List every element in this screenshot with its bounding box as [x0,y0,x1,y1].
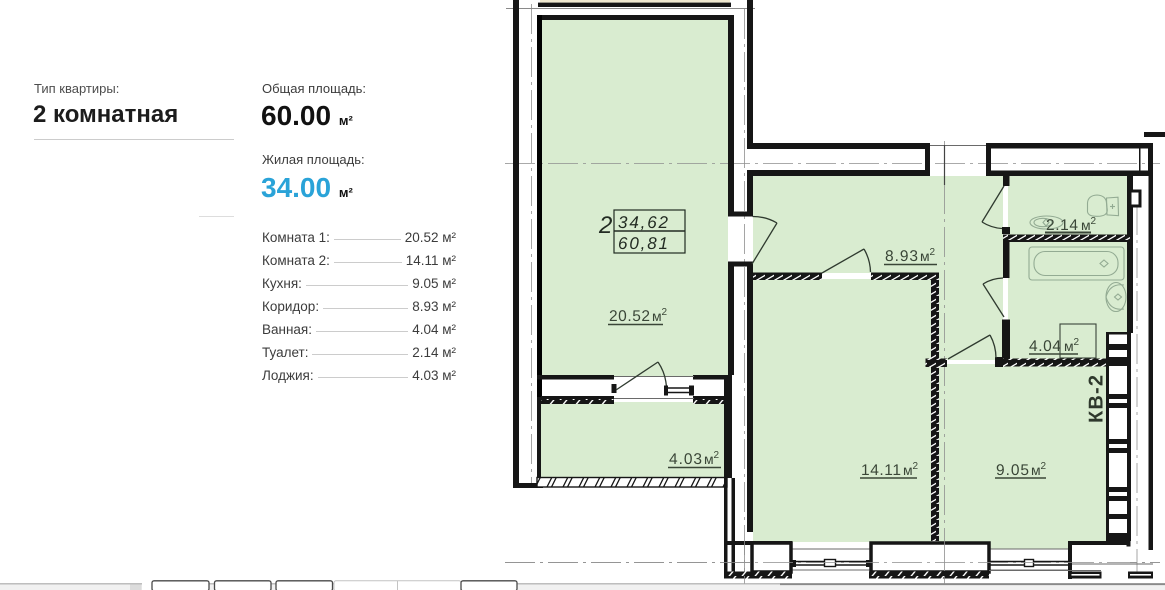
svg-text:9.05: 9.05 [996,462,1029,479]
svg-text:КВ-2: КВ-2 [1086,375,1108,423]
svg-text:14.11: 14.11 [861,462,901,479]
svg-text:м: м [1081,217,1091,233]
svg-text:м: м [920,248,930,264]
svg-text:2: 2 [714,450,720,461]
svg-text:4.04: 4.04 [1029,338,1061,355]
svg-text:2.14: 2.14 [1046,217,1078,234]
svg-text:м: м [903,462,913,478]
svg-text:м: м [704,451,714,467]
svg-text:м: м [1064,338,1074,354]
svg-text:8.93: 8.93 [885,248,918,265]
svg-text:2: 2 [598,212,612,239]
svg-text:20.52: 20.52 [609,308,650,325]
svg-text:4.03: 4.03 [669,451,702,468]
svg-text:2: 2 [913,461,919,472]
svg-text:2: 2 [1091,216,1097,227]
svg-text:2: 2 [930,247,936,258]
svg-text:2: 2 [662,307,668,318]
svg-text:2: 2 [1074,337,1080,348]
svg-text:м: м [1031,462,1041,478]
svg-text:м: м [652,308,662,324]
svg-text:2: 2 [1041,461,1047,472]
svg-text:60,81: 60,81 [618,234,668,253]
svg-text:34,62: 34,62 [618,213,669,232]
